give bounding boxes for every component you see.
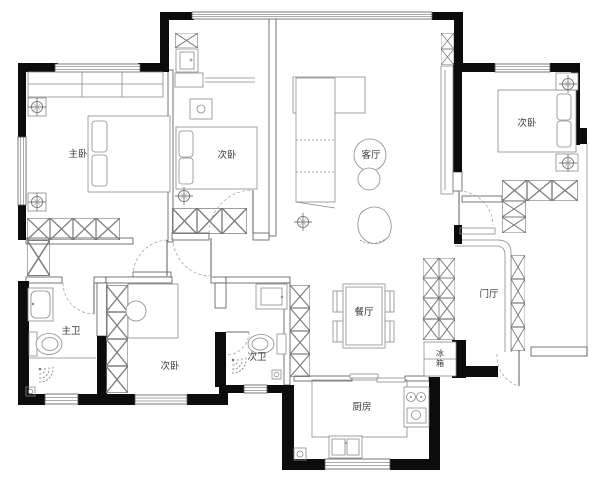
door-bedroom4 xyxy=(173,238,211,276)
bedroom3-bed xyxy=(498,90,576,152)
floor-plan-drawing: 主卧 次卧 次卧 客厅 餐厅 门厅 主卫 次卧 次卫 厨房 冰 箱 xyxy=(0,0,600,480)
bedroom4-vanity xyxy=(126,284,178,338)
label-dining-room: 餐厅 xyxy=(354,306,374,318)
tv-cabinet xyxy=(441,66,453,194)
door-kitchen-slider xyxy=(350,374,405,382)
sofa xyxy=(293,77,365,208)
shower-spray-bath2 xyxy=(231,358,246,373)
light-mark-icon xyxy=(294,213,312,231)
bath2-drain xyxy=(272,370,281,379)
door-masterbath xyxy=(63,283,94,314)
bath2-sink xyxy=(256,284,287,309)
bedroom2-nightstand xyxy=(190,99,212,119)
label-master-bathroom: 主卫 xyxy=(61,325,81,337)
light-mark-icon xyxy=(175,187,193,205)
window-master-left xyxy=(18,137,26,205)
label-bedroom-bottom: 次卧 xyxy=(160,360,180,372)
foyer-bench xyxy=(460,228,495,234)
bath2-toilet xyxy=(248,334,286,354)
door-bath2 xyxy=(226,332,249,355)
floor-plan-canvas: 主卧 次卧 次卧 客厅 餐厅 门厅 主卫 次卧 次卫 厨房 冰 箱 xyxy=(0,0,600,480)
label-bedroom-top-right: 次卧 xyxy=(517,117,537,129)
window-bedroom-bottom xyxy=(135,395,187,404)
window-top-middle xyxy=(192,12,432,19)
armchair xyxy=(358,207,391,244)
door-entry xyxy=(497,350,519,386)
label-master-bedroom: 主卧 xyxy=(68,148,88,160)
kitchen-sink xyxy=(329,436,362,458)
bedroom2-desk xyxy=(175,73,255,87)
window-bedroom-right xyxy=(495,64,550,72)
masterbath-sink xyxy=(28,288,53,321)
window-kitchen xyxy=(325,459,390,469)
door-master-suite xyxy=(133,240,167,276)
coffee-table xyxy=(354,139,386,190)
label-fridge-bottom: 箱 xyxy=(436,358,444,368)
master-wardrobe-band xyxy=(28,72,163,97)
label-foyer: 门厅 xyxy=(479,288,499,300)
label-second-bathroom: 次卫 xyxy=(247,351,267,363)
kitchen-drain xyxy=(294,448,306,460)
stove xyxy=(404,387,429,427)
window-masterbath xyxy=(45,394,78,404)
shower-spray-masterbath xyxy=(38,367,53,382)
master-bed xyxy=(88,116,170,192)
label-fridge-top: 冰 xyxy=(436,348,444,358)
bedroom2-cabinet xyxy=(176,49,198,72)
window-master-top xyxy=(55,64,140,72)
masterbath-toilet xyxy=(29,332,62,356)
label-kitchen: 厨房 xyxy=(352,401,371,413)
label-living-room: 客厅 xyxy=(361,149,381,161)
window-bath2 xyxy=(244,385,267,393)
label-bedroom-top-middle: 次卧 xyxy=(217,149,237,161)
